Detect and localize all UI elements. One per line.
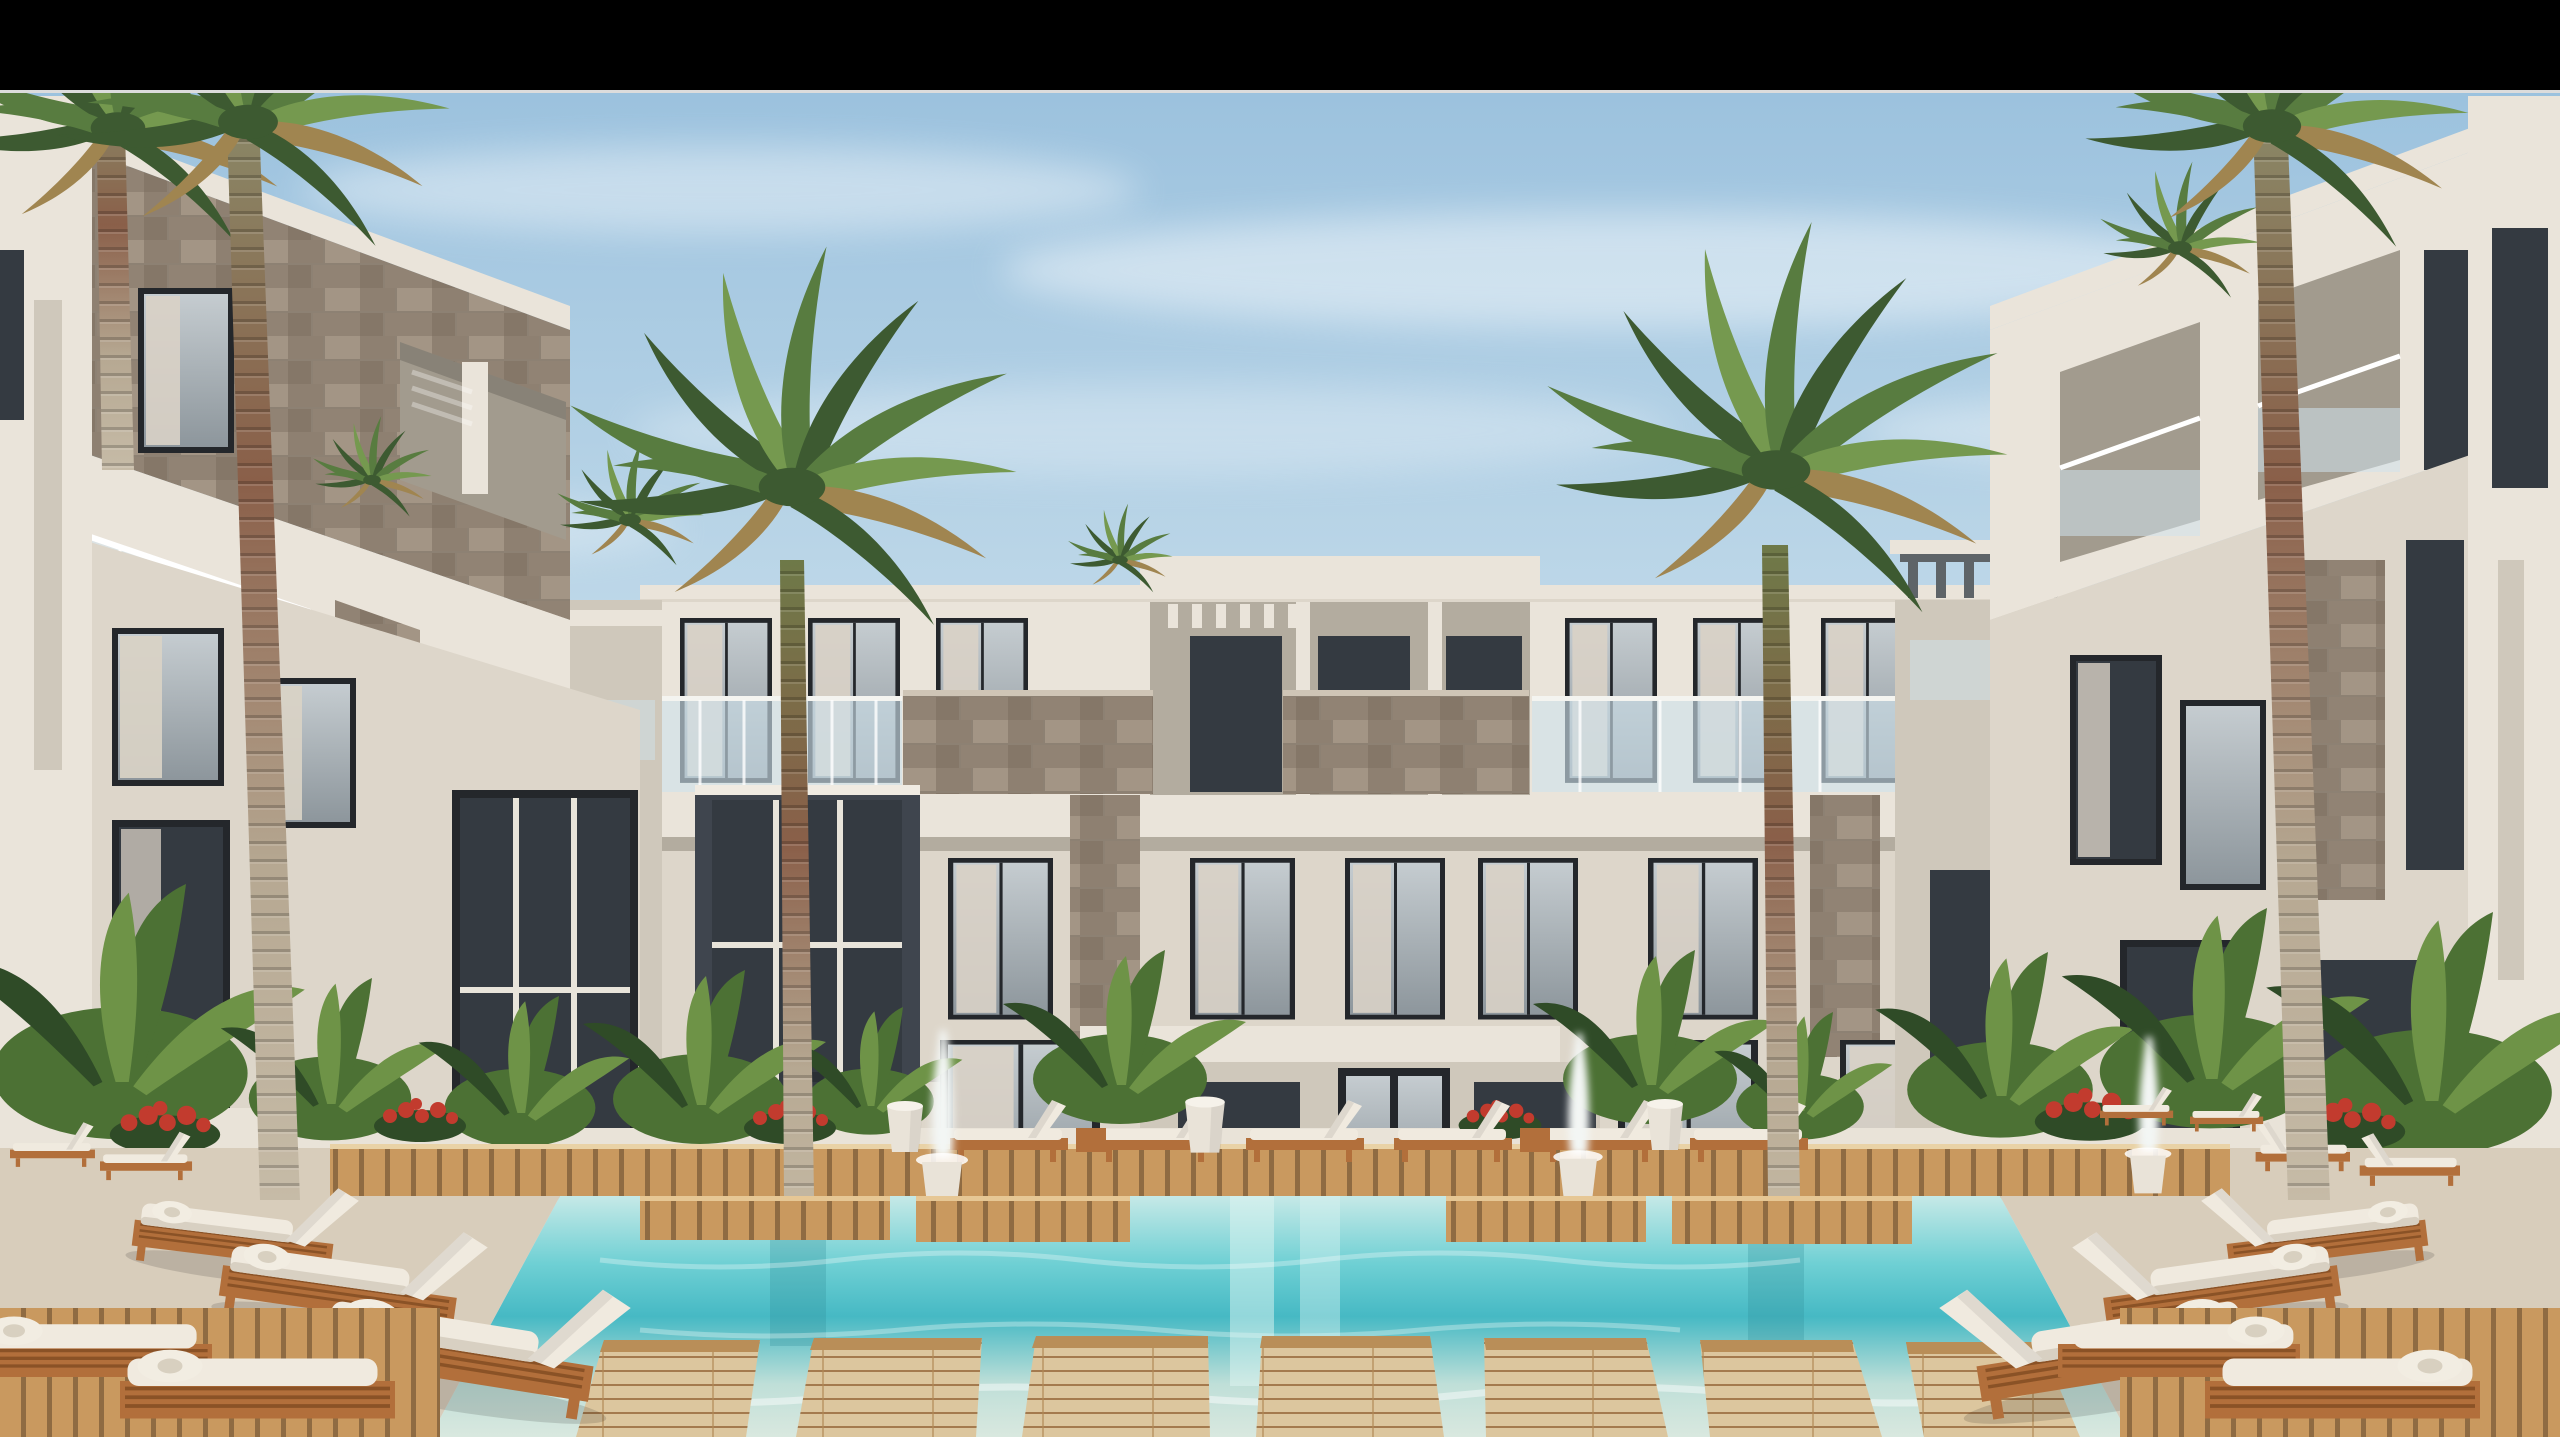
balcony-pillar xyxy=(462,362,488,494)
photo-top-divider xyxy=(0,90,2560,93)
screenshot-canvas xyxy=(0,0,2560,1437)
stone-balcony-parapet xyxy=(903,694,1153,794)
side-table xyxy=(1076,1128,1106,1152)
stone-window xyxy=(138,288,234,453)
wood-deck-edge xyxy=(330,1146,2230,1198)
porch-window xyxy=(1190,636,1282,792)
stone-balcony-parapet xyxy=(1283,694,1529,794)
edge-window xyxy=(0,250,24,420)
photo xyxy=(0,0,2560,1437)
pool xyxy=(430,1196,2130,1437)
stone-pier xyxy=(1810,795,1880,1057)
resort-rendering xyxy=(0,0,2560,1437)
balcony-railing xyxy=(660,690,2060,794)
facade-groove xyxy=(34,300,62,770)
facade-groove xyxy=(2498,560,2524,980)
edge-window xyxy=(2492,228,2548,488)
letterbox-top-bar xyxy=(0,0,2560,90)
side-table xyxy=(1520,1128,1550,1152)
